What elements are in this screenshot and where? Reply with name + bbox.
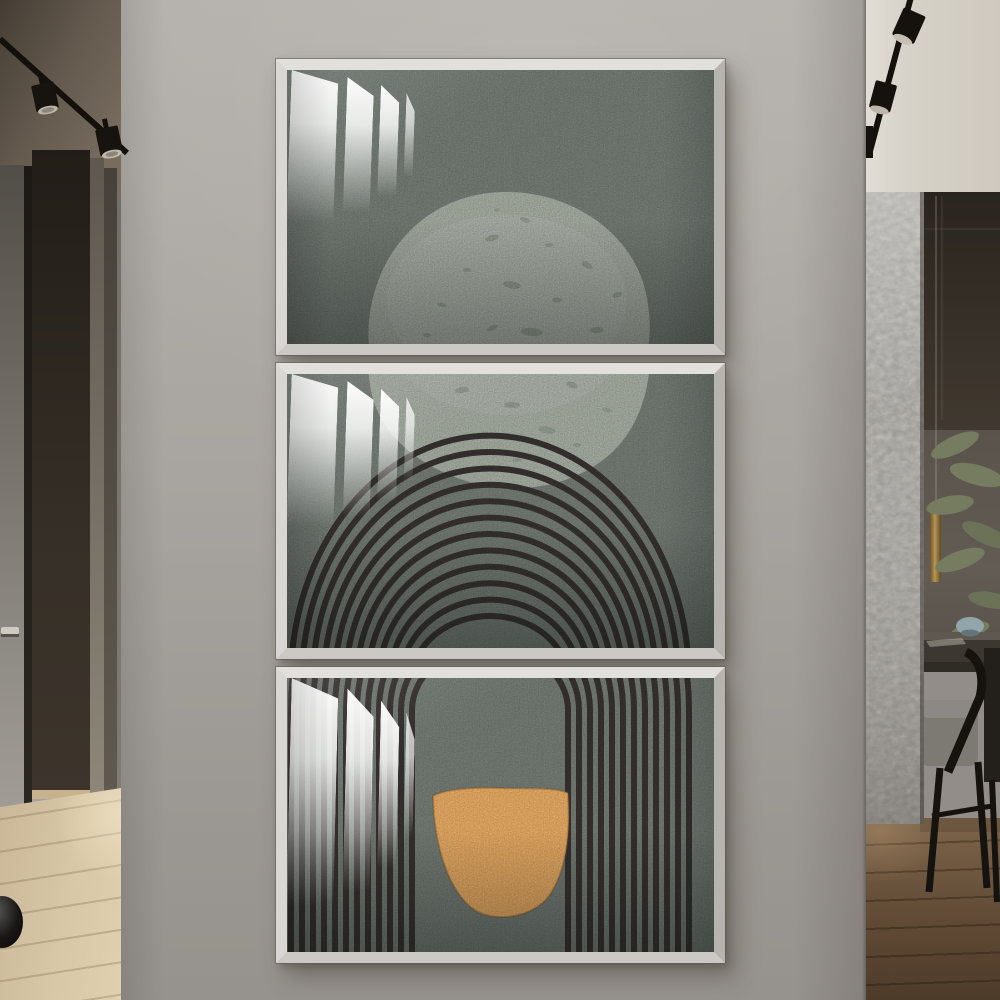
canvas-middle — [287, 374, 714, 648]
dark-wood-column — [32, 150, 90, 798]
triptych-wall-art — [276, 59, 725, 965]
artwork-segment — [287, 70, 714, 344]
dining-room-wall — [920, 430, 1000, 665]
artwork-segment — [287, 678, 714, 952]
right-ceiling — [866, 0, 1000, 196]
canvas-top — [287, 70, 714, 344]
light-wood-floor — [0, 788, 121, 1000]
artwork-segment — [287, 374, 714, 648]
art-panel-middle — [276, 363, 725, 659]
art-panel-top — [276, 59, 725, 355]
glass-reflection-line — [920, 228, 1000, 230]
room-photo — [0, 0, 1000, 1000]
hallway-wall-strip-dark — [104, 168, 117, 794]
hallway-wall-strip — [90, 158, 104, 796]
canvas-bottom — [287, 678, 714, 952]
art-panel-bottom — [276, 667, 725, 963]
left-door — [0, 165, 24, 821]
dark-wood-floor — [866, 818, 1000, 1000]
left-door-gap — [24, 166, 32, 814]
concrete-pillar — [866, 192, 924, 824]
